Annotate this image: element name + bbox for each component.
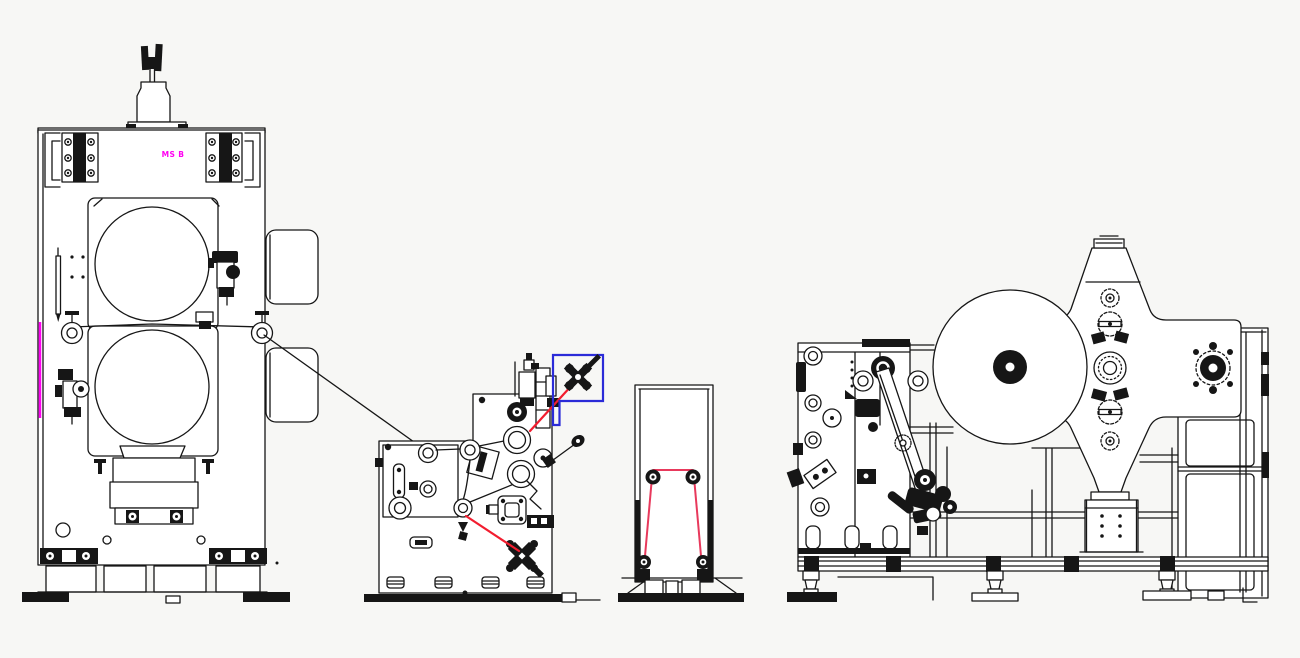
lower-roll-assembly <box>88 326 218 456</box>
blue-highlight-box <box>553 355 603 425</box>
lower-roll <box>95 330 209 444</box>
mill-roll <box>933 290 1087 444</box>
coating-unit <box>364 344 611 602</box>
lifting-lug <box>126 44 188 129</box>
coating-ring-upper <box>504 427 531 454</box>
turret-winder <box>787 236 1269 602</box>
turret-pedestal <box>1080 492 1143 552</box>
plate-label: MS B <box>162 150 185 159</box>
side-box-upper <box>266 230 318 304</box>
base-legs <box>22 566 290 603</box>
foot-right <box>209 548 279 565</box>
upper-roll <box>95 207 209 321</box>
leveling-foot-middle <box>987 571 1003 594</box>
machinery-line-drawing: MS B <box>0 0 1300 658</box>
unwinder-body <box>787 339 957 557</box>
leveling-foot-left <box>803 571 819 594</box>
diagram-canvas: MS B <box>0 0 1300 658</box>
web-guide-stand <box>618 385 744 602</box>
coating-ring-lower <box>508 461 535 488</box>
upper-roll-assembly <box>88 198 219 330</box>
side-box-lower <box>266 348 318 422</box>
infeed-roller <box>419 444 438 463</box>
scale-bar <box>56 248 61 322</box>
calender-machine: MS B <box>22 44 318 603</box>
bolt-plate-left <box>62 133 98 182</box>
bolt-plate-right <box>206 133 242 182</box>
foot-left <box>40 548 98 564</box>
